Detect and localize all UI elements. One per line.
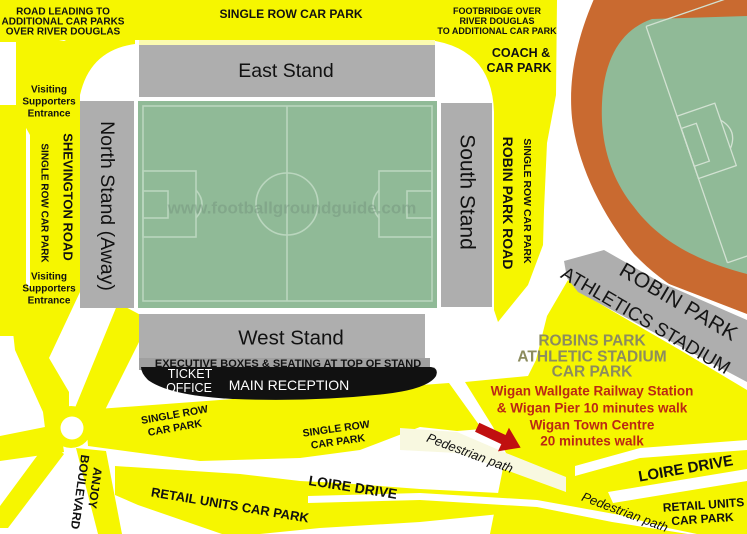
svg-text:SHEVINGTON ROAD: SHEVINGTON ROAD [61,133,76,261]
svg-text:MAIN RECEPTION: MAIN RECEPTION [229,377,350,393]
svg-text:& Wigan Pier 10 minutes walk: & Wigan Pier 10 minutes walk [497,401,688,416]
svg-text:TICKET: TICKET [168,367,213,381]
svg-text:Wigan Wallgate Railway Station: Wigan Wallgate Railway Station [491,384,694,399]
svg-text:Wigan Town Centre: Wigan Town Centre [530,418,655,433]
svg-text:Entrance: Entrance [28,296,71,307]
svg-text:ROBINS PARK: ROBINS PARK [538,333,646,350]
svg-text:20 minutes walk: 20 minutes walk [540,434,644,449]
svg-text:SINGLE ROW CAR PARK: SINGLE ROW CAR PARK [39,143,50,263]
svg-text:Entrance: Entrance [28,109,71,120]
svg-text:SINGLE ROW CAR PARK: SINGLE ROW CAR PARK [521,138,533,264]
svg-text:CAR PARK: CAR PARK [552,364,633,381]
svg-text:FOOTBRIDGE OVER: FOOTBRIDGE OVER [453,6,542,16]
svg-text:OVER RIVER DOUGLAS: OVER RIVER DOUGLAS [6,27,121,38]
svg-text:Visiting: Visiting [31,272,67,283]
svg-text:South Stand: South Stand [456,134,479,250]
svg-text:www.footballgroundguide.com: www.footballgroundguide.com [167,199,417,218]
svg-text:West Stand: West Stand [238,327,344,350]
svg-text:Visiting: Visiting [31,85,67,96]
svg-text:TO ADDITIONAL CAR PARK: TO ADDITIONAL CAR PARK [437,26,557,36]
svg-text:Supporters: Supporters [22,284,76,295]
svg-text:ROBIN PARK ROAD: ROBIN PARK ROAD [500,137,516,270]
svg-text:RIVER DOUGLAS: RIVER DOUGLAS [459,16,534,26]
svg-text:North Stand (Away): North Stand (Away) [96,121,118,291]
svg-text:COACH &: COACH & [492,46,550,60]
svg-text:OFFICE: OFFICE [166,381,212,395]
svg-text:SINGLE ROW CAR PARK: SINGLE ROW CAR PARK [219,7,362,21]
svg-text:East Stand: East Stand [238,60,333,82]
svg-text:Supporters: Supporters [22,97,76,108]
svg-text:CAR PARK: CAR PARK [486,61,551,75]
